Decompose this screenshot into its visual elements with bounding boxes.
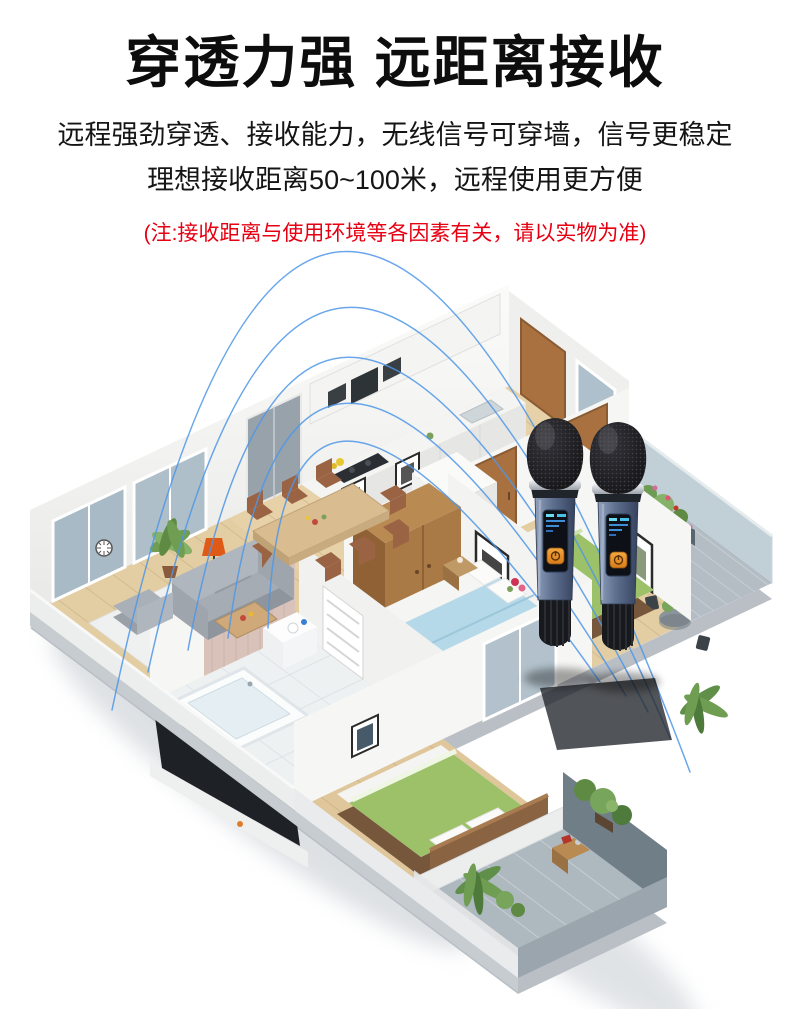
subtitle-line-2: 理想接收距离50~100米，远程使用更方便 [0, 158, 790, 203]
flowers-decor [336, 458, 344, 466]
subtitle-line-1: 远程强劲穿透、接收能力，无线信号可穿墙，信号更稳定 [0, 113, 790, 158]
page-title: 穿透力强 远距离接收 [0, 18, 790, 99]
microphone-shadow [524, 668, 672, 750]
mic-head-mesh [527, 418, 583, 490]
balcony-palm [677, 681, 730, 734]
wall-clock-icon [96, 540, 112, 556]
header-block: 穿透力强 远距离接收 远程强劲穿透、接收能力，无线信号可穿墙，信号更稳定 理想接… [0, 0, 790, 247]
disclaimer-note: (注:接收距离与使用环境等各因素有关，请以实物为准) [0, 217, 790, 247]
mic-tail [539, 598, 571, 646]
promo-page: 穿透力强 远距离接收 远程强劲穿透、接收能力，无线信号可穿墙，信号更稳定 理想接… [0, 0, 790, 1009]
